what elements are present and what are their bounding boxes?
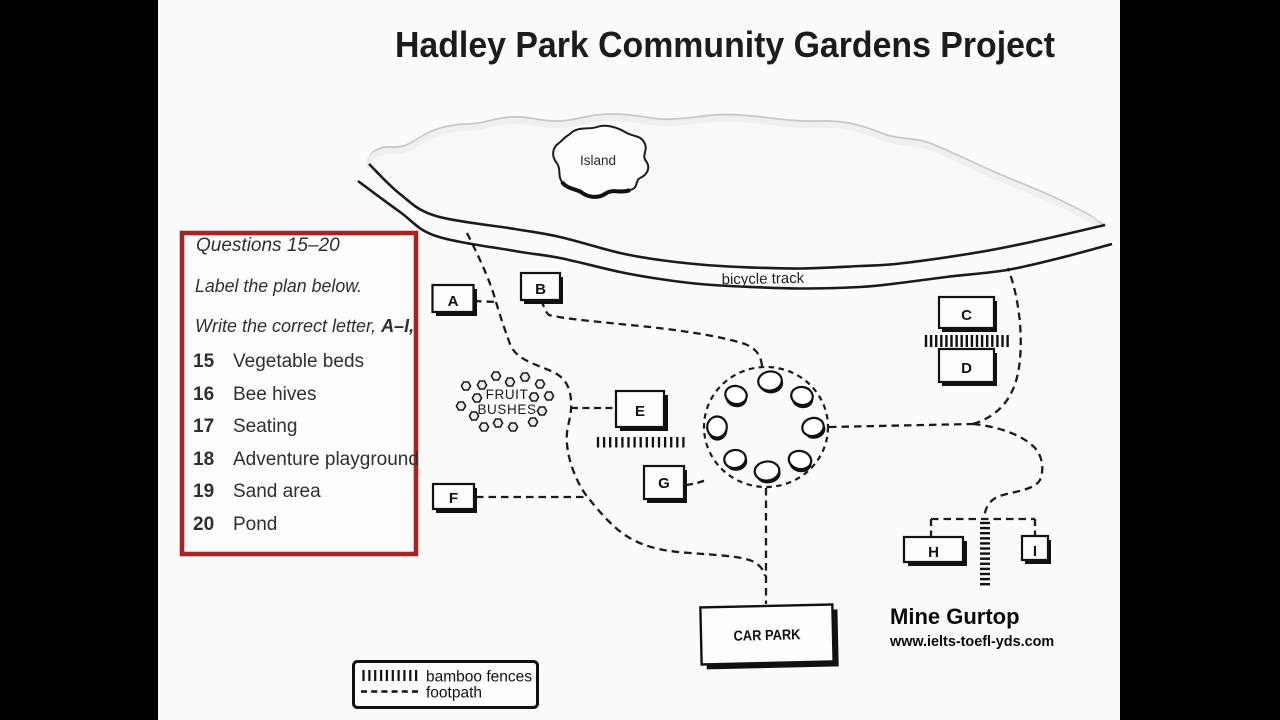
svg-text:Vegetable beds: Vegetable beds — [233, 351, 364, 372]
svg-text:16: 16 — [193, 384, 214, 405]
svg-text:E: E — [635, 403, 645, 420]
svg-text:Bee hives: Bee hives — [233, 384, 316, 405]
svg-text:Seating: Seating — [233, 416, 297, 437]
svg-text:Island: Island — [580, 153, 616, 168]
svg-text:Sand area: Sand area — [233, 481, 321, 502]
svg-text:CAR PARK: CAR PARK — [733, 627, 801, 645]
svg-text:www.ielts-toefl-yds.com: www.ielts-toefl-yds.com — [889, 634, 1054, 650]
svg-text:Write the correct letter, A–I,: Write the correct letter, A–I, — [195, 316, 414, 336]
svg-text:Label the plan below.: Label the plan below. — [195, 275, 362, 296]
svg-text:Mine Gurtop: Mine Gurtop — [890, 604, 1020, 629]
svg-text:17: 17 — [193, 416, 214, 437]
svg-text:D: D — [961, 360, 972, 377]
svg-text:18: 18 — [193, 449, 214, 470]
svg-text:Adventure playground: Adventure playground — [233, 449, 419, 470]
svg-text:bamboo fences: bamboo fences — [426, 669, 532, 686]
svg-text:I: I — [1033, 543, 1037, 560]
svg-text:19: 19 — [193, 481, 214, 502]
svg-text:FRUIT: FRUIT — [486, 387, 529, 402]
svg-text:Pond: Pond — [233, 514, 277, 535]
svg-text:footpath: footpath — [426, 685, 482, 702]
svg-text:15: 15 — [193, 351, 215, 372]
svg-text:Questions 15–20: Questions 15–20 — [196, 235, 340, 256]
svg-text:C: C — [961, 307, 972, 324]
svg-text:F: F — [449, 490, 458, 507]
svg-text:bicycle track: bicycle track — [722, 270, 805, 288]
svg-text:BUSHES: BUSHES — [477, 402, 536, 417]
svg-text:A: A — [448, 293, 459, 310]
svg-text:20: 20 — [193, 514, 214, 535]
svg-text:B: B — [535, 281, 546, 298]
svg-text:G: G — [658, 475, 670, 492]
svg-text:Hadley Park Community Gardens: Hadley Park Community Gardens Project — [395, 24, 1055, 65]
svg-text:H: H — [928, 544, 939, 561]
